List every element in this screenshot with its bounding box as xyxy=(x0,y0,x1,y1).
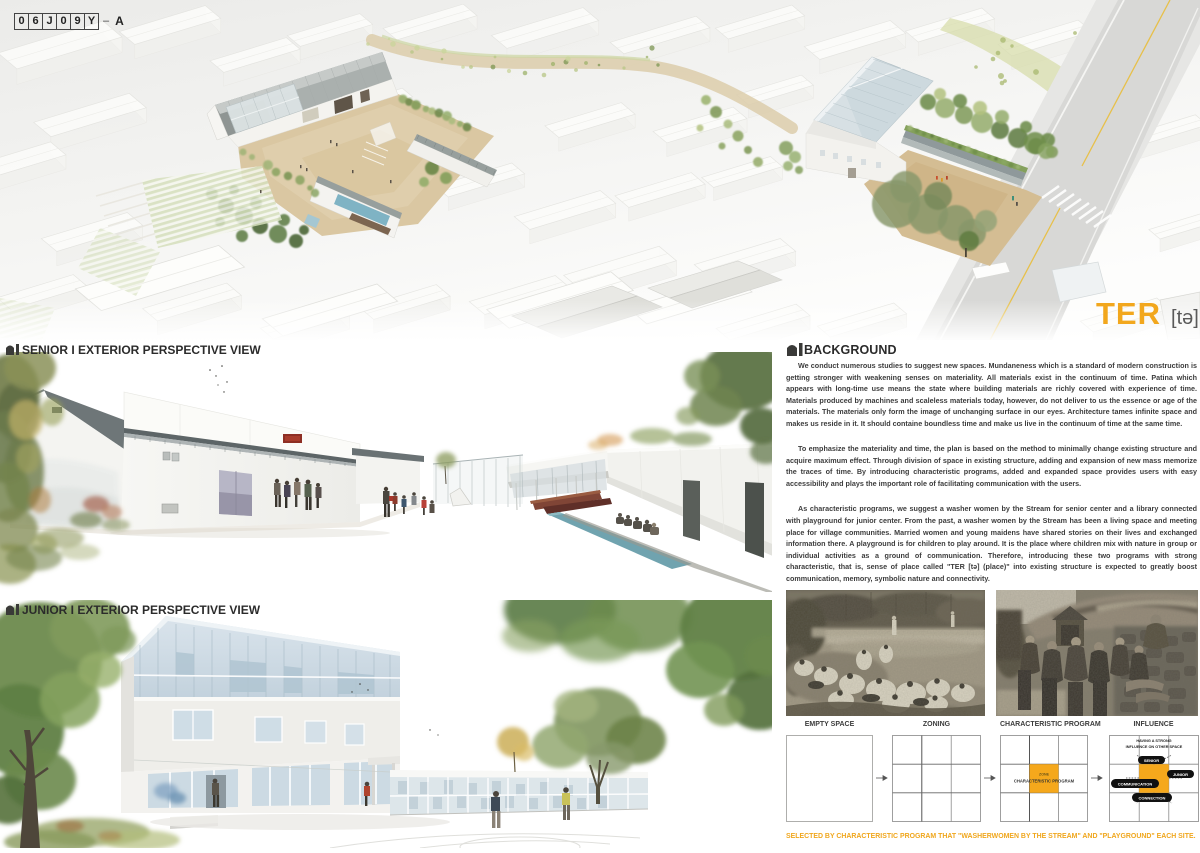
svg-text:ZONE: ZONE xyxy=(1039,773,1050,777)
svg-text:CONNECTION: CONNECTION xyxy=(1139,796,1166,801)
svg-text:CHARACTERISTIC PROGRAM: CHARACTERISTIC PROGRAM xyxy=(1014,779,1075,784)
svg-text:SENIOR: SENIOR xyxy=(1144,758,1159,763)
svg-text:INFLUENCE ON OTHER SPACE: INFLUENCE ON OTHER SPACE xyxy=(1126,745,1183,749)
svg-text:HAVING A STRONG: HAVING A STRONG xyxy=(1136,739,1171,743)
svg-text:COMMUNICATION: COMMUNICATION xyxy=(1118,782,1153,787)
svg-text:JUNIOR: JUNIOR xyxy=(1173,772,1188,777)
